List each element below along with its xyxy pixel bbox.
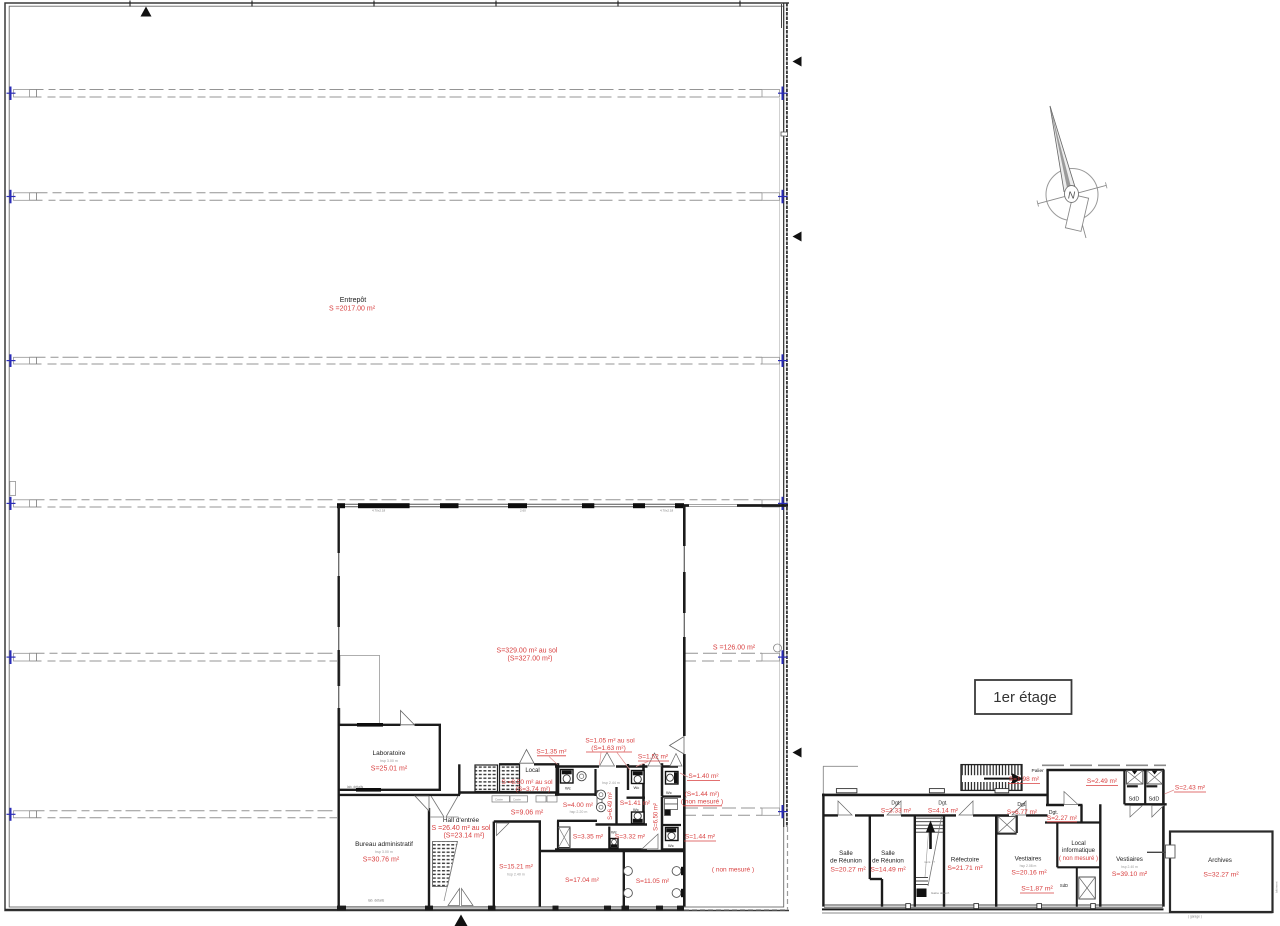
svg-text:S=21.71 m²: S=21.71 m²	[947, 865, 983, 872]
svg-text:Wc: Wc	[668, 843, 674, 848]
svg-text:de Réunion: de Réunion	[872, 858, 904, 865]
svg-text:S=329.00 m² au sol: S=329.00 m² au sol	[497, 648, 558, 655]
svg-text:Wc: Wc	[666, 790, 672, 795]
svg-text:S=1.41 m²: S=1.41 m²	[620, 800, 651, 807]
svg-text:( garage ): ( garage )	[1188, 915, 1202, 919]
svg-text:lab. détails: lab. détails	[368, 899, 385, 903]
svg-text:S =26.40 m² au sol: S =26.40 m² au sol	[432, 825, 491, 832]
svg-text:S =126.00 m²: S =126.00 m²	[713, 645, 756, 652]
svg-text:S=25.01 m²: S=25.01 m²	[371, 766, 408, 773]
svg-text:Bureau administratif: Bureau administratif	[355, 841, 413, 848]
svg-text:Laboratoire: Laboratoire	[373, 750, 406, 757]
svg-text:S=15.21 m²: S=15.21 m²	[499, 864, 534, 871]
svg-text:4.70x2.18: 4.70x2.18	[372, 509, 386, 513]
svg-text:Dgt.: Dgt.	[938, 801, 947, 807]
svg-text:(S=1.63 m²): (S=1.63 m²)	[591, 745, 626, 752]
svg-text:S=1.35 m²: S=1.35 m²	[536, 749, 567, 756]
svg-text:Gaine désenf.: Gaine désenf.	[931, 891, 950, 895]
svg-text:Casier: Casier	[495, 798, 503, 802]
svg-text:S=14.49 m²: S=14.49 m²	[870, 867, 906, 874]
svg-text:(S=23.14 m²): (S=23.14 m²)	[443, 833, 484, 840]
svg-text:(S=3.74 m²): (S=3.74 m²)	[516, 786, 551, 793]
svg-text:informatique: informatique	[1062, 848, 1096, 854]
svg-text:S=1.98 m²: S=1.98 m²	[1009, 776, 1040, 783]
svg-text:hsp 2.20 m: hsp 2.20 m	[570, 810, 588, 814]
svg-text:S=20.16 m²: S=20.16 m²	[1011, 870, 1047, 877]
svg-text:( non mesuré ): ( non mesuré )	[1059, 856, 1098, 862]
svg-text:Archives: Archives	[1208, 857, 1232, 864]
svg-text:S=6.77 m²: S=6.77 m²	[1007, 809, 1038, 816]
svg-text:S=1.05 m² au sol: S=1.05 m² au sol	[585, 738, 635, 745]
svg-text:SdD: SdD	[1149, 797, 1160, 803]
svg-text:S=1.44 m²: S=1.44 m²	[685, 834, 716, 841]
svg-text:hsp 2.08 m: hsp 2.08 m	[1020, 864, 1037, 868]
svg-text:(S=327.00 m²): (S=327.00 m²)	[508, 656, 553, 663]
svg-text:S=6.50 m²: S=6.50 m²	[654, 803, 660, 831]
svg-text:2.60: 2.60	[520, 509, 526, 513]
svg-text:S=4.00 m²: S=4.00 m²	[563, 802, 594, 809]
svg-text:hsp 3.00 m: hsp 3.00 m	[375, 850, 393, 854]
svg-text:S=2.43 m²: S=2.43 m²	[1175, 785, 1206, 792]
svg-text:hsp 2.40 m: hsp 2.40 m	[1121, 865, 1138, 869]
svg-text:Vestiaires: Vestiaires	[1116, 856, 1143, 863]
svg-text:S=9.06 m²: S=9.06 m²	[511, 810, 544, 817]
svg-text:S =8.50 m² au sol: S =8.50 m² au sol	[501, 779, 553, 786]
svg-text:Réfectoire: Réfectoire	[951, 857, 980, 864]
svg-text:hsp 2.40 m: hsp 2.40 m	[507, 873, 525, 877]
svg-text:S=1.40 m²: S=1.40 m²	[688, 773, 719, 780]
svg-text:S=32.27 m²: S=32.27 m²	[1203, 872, 1239, 879]
svg-text:S=4.14 m²: S=4.14 m²	[928, 808, 959, 815]
svg-text:4.70x2.18: 4.70x2.18	[660, 509, 674, 513]
svg-text:( non mesuré ): ( non mesuré )	[681, 799, 723, 806]
svg-text:S=11.05 m²: S=11.05 m²	[636, 878, 670, 885]
svg-text:Wc: Wc	[634, 785, 640, 790]
svg-text:S=1.87 m²: S=1.87 m²	[1021, 886, 1053, 893]
svg-text:mont. 17: mont. 17	[924, 860, 935, 864]
svg-text:1er étage: 1er étage	[993, 689, 1056, 706]
svg-text:S=6.49 m²: S=6.49 m²	[608, 792, 614, 820]
svg-text:Salle: Salle	[839, 850, 853, 857]
svg-text:S=17.04 m²: S=17.04 m²	[565, 877, 600, 884]
svg-text:Wc: Wc	[633, 807, 639, 812]
svg-text:S=3.32 m²: S=3.32 m²	[615, 834, 646, 841]
svg-text:S=20.27 m²: S=20.27 m²	[830, 867, 866, 874]
svg-text:hsp 2.44 m: hsp 2.44 m	[602, 781, 620, 785]
svg-text:Palier: Palier	[1032, 768, 1045, 774]
svg-text:Vestiaires: Vestiaires	[1015, 856, 1042, 863]
svg-text:Hall d'entrée: Hall d'entrée	[443, 817, 480, 824]
svg-text:bâtiment: bâtiment	[1275, 881, 1279, 893]
svg-text:SdD: SdD	[1060, 883, 1068, 888]
svg-text:S =2017.00 m²: S =2017.00 m²	[329, 306, 376, 313]
svg-text:S=3.33 m²: S=3.33 m²	[881, 808, 912, 815]
svg-text:de Réunion: de Réunion	[830, 858, 862, 865]
svg-text:Dgt.: Dgt.	[1017, 802, 1026, 808]
svg-text:Entrepôt: Entrepôt	[340, 297, 367, 304]
svg-text:N: N	[1068, 191, 1076, 202]
svg-text:S=1.52 m²: S=1.52 m²	[638, 754, 669, 761]
svg-text:(S=1.44 m²): (S=1.44 m²)	[685, 791, 720, 798]
svg-text:Wc: Wc	[565, 786, 571, 791]
svg-text:S=39.10 m²: S=39.10 m²	[1112, 871, 1148, 878]
svg-text:( non mesuré ): ( non mesuré )	[712, 867, 754, 874]
svg-text:S=3.35 m²: S=3.35 m²	[573, 834, 604, 841]
svg-text:hsp 3.00 m: hsp 3.00 m	[380, 759, 398, 763]
svg-text:Salle: Salle	[881, 850, 895, 857]
svg-text:S=2.49 m²: S=2.49 m²	[1087, 778, 1118, 785]
svg-text:S=2.27 m²: S=2.27 m²	[1047, 815, 1078, 822]
svg-text:S=30.76 m²: S=30.76 m²	[363, 857, 400, 864]
svg-text:Local: Local	[525, 768, 539, 774]
svg-text:SdD: SdD	[1129, 797, 1140, 803]
svg-text:Dgt.: Dgt.	[891, 801, 900, 807]
svg-text:lab. détails: lab. détails	[347, 785, 364, 789]
svg-text:Local: Local	[1071, 841, 1085, 847]
svg-text:Casier: Casier	[513, 798, 521, 802]
